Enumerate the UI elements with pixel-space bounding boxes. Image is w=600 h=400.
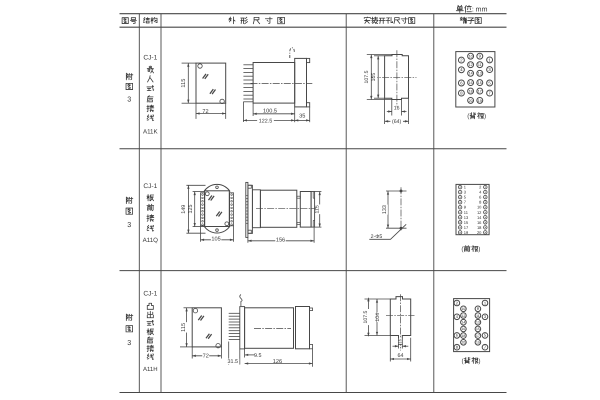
svg-text:): ): [478, 358, 480, 365]
svg-text:20: 20: [469, 99, 473, 103]
svg-text:10: 10: [469, 55, 473, 59]
svg-text:15: 15: [478, 81, 482, 85]
svg-text:16: 16: [398, 338, 403, 343]
svg-text:3: 3: [127, 338, 131, 347]
svg-text:): ): [484, 113, 486, 120]
svg-text:11: 11: [476, 314, 480, 318]
svg-text:133: 133: [382, 205, 388, 214]
svg-text:35: 35: [299, 113, 305, 119]
svg-text:156: 156: [276, 238, 285, 244]
svg-text:17: 17: [476, 334, 480, 338]
svg-text:16: 16: [462, 327, 466, 331]
svg-text:13: 13: [476, 321, 480, 325]
svg-text:20: 20: [477, 230, 482, 235]
svg-text:A11H: A11H: [143, 366, 158, 373]
svg-text:18: 18: [462, 334, 466, 338]
svg-text:107.5: 107.5: [363, 310, 369, 323]
svg-text:CJ-1: CJ-1: [143, 291, 157, 298]
svg-text:9.5: 9.5: [254, 353, 262, 359]
svg-text:115: 115: [181, 323, 187, 332]
svg-text:3: 3: [127, 95, 131, 104]
svg-text:CJ-1: CJ-1: [143, 183, 157, 190]
svg-text:104: 104: [375, 313, 381, 322]
svg-text:A11Q: A11Q: [143, 237, 159, 244]
svg-text:(64): (64): [392, 119, 401, 125]
svg-text:15: 15: [476, 327, 480, 331]
svg-text:31.5: 31.5: [228, 359, 239, 365]
svg-text:18: 18: [469, 90, 473, 94]
svg-text:64: 64: [398, 353, 404, 359]
svg-text:19: 19: [478, 99, 482, 103]
svg-text:): ): [478, 246, 480, 253]
svg-text:10: 10: [462, 307, 466, 311]
svg-text:19: 19: [464, 230, 469, 235]
svg-text:11: 11: [478, 63, 482, 67]
svg-text:105: 105: [211, 237, 220, 243]
svg-text:107.5: 107.5: [364, 70, 370, 83]
svg-text:149: 149: [181, 205, 187, 214]
svg-text:3: 3: [127, 220, 131, 229]
svg-text:mm: mm: [476, 5, 488, 14]
svg-text:20: 20: [462, 341, 466, 345]
svg-text:14: 14: [469, 72, 473, 76]
svg-text:19: 19: [476, 341, 480, 345]
svg-text:105: 105: [371, 73, 377, 82]
svg-text:12: 12: [469, 63, 473, 67]
svg-text:126: 126: [273, 359, 282, 365]
svg-text:13: 13: [478, 72, 482, 76]
svg-text:2-Φ5: 2-Φ5: [371, 234, 383, 240]
svg-text:16: 16: [394, 105, 400, 111]
svg-text:A11K: A11K: [143, 128, 159, 135]
svg-text:12: 12: [462, 314, 466, 318]
svg-text:72: 72: [203, 354, 209, 360]
svg-text:115: 115: [315, 205, 321, 213]
svg-text:16: 16: [469, 81, 473, 85]
svg-text:100.5: 100.5: [263, 108, 277, 114]
svg-text:72: 72: [202, 109, 208, 115]
svg-text:17: 17: [478, 90, 482, 94]
svg-text::: :: [472, 7, 474, 14]
svg-text:115: 115: [181, 79, 187, 88]
svg-text:CJ-1: CJ-1: [143, 54, 157, 61]
svg-text:125: 125: [188, 205, 194, 214]
svg-text:122.5: 122.5: [259, 118, 273, 124]
svg-text:14: 14: [462, 321, 466, 325]
